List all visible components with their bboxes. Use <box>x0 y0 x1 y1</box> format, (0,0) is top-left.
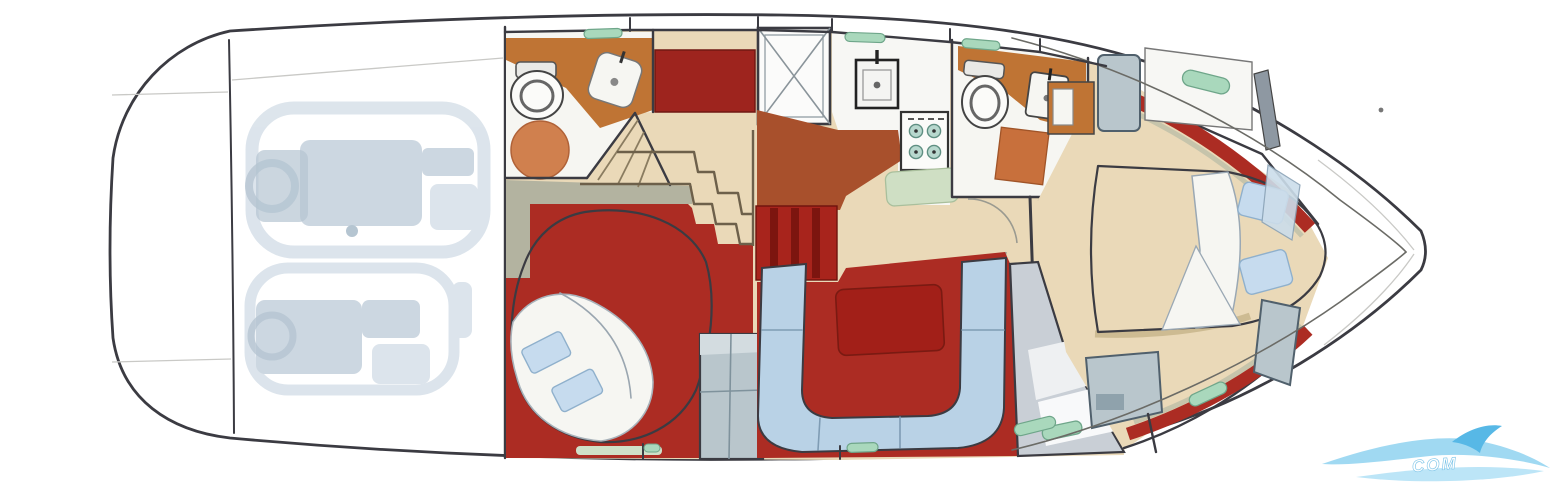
engine-block-starboard <box>256 300 362 374</box>
salon-dinette <box>757 252 1020 458</box>
forward-wardrobe-drawer <box>1096 394 1124 410</box>
stove-4-burner <box>901 112 948 170</box>
engine-block-port <box>300 140 422 226</box>
aft-wardrobe <box>700 334 763 459</box>
toilet <box>511 62 563 119</box>
toilet <box>962 60 1008 128</box>
floor-plan-canvas: COM <box>0 0 1560 496</box>
engine-mount-starboard <box>372 344 430 384</box>
deck-hatch <box>847 442 878 452</box>
engine-manifold-port <box>422 148 474 176</box>
galley-mat <box>885 168 959 207</box>
deck-hatch <box>584 28 622 38</box>
watermark-text: COM <box>1411 454 1458 476</box>
deck-hatch <box>845 32 885 42</box>
rudder-ghost <box>452 282 472 338</box>
mid-head-mat <box>995 127 1049 184</box>
dinette-table <box>835 284 944 355</box>
engine-mount-port <box>430 184 478 230</box>
aft-berth-block <box>655 50 755 112</box>
forward-vanity <box>1048 82 1094 134</box>
engine-detail-dot <box>346 225 358 237</box>
yacht-floor-plan: COM <box>0 0 1560 496</box>
galley-sink <box>856 50 898 108</box>
shower <box>758 28 830 124</box>
watermark: COM <box>1322 425 1550 481</box>
bow-fitting-dot <box>1379 108 1384 113</box>
round-rug <box>511 121 569 179</box>
engine-manifold-starboard <box>362 300 420 338</box>
deck-hatch <box>644 444 660 452</box>
